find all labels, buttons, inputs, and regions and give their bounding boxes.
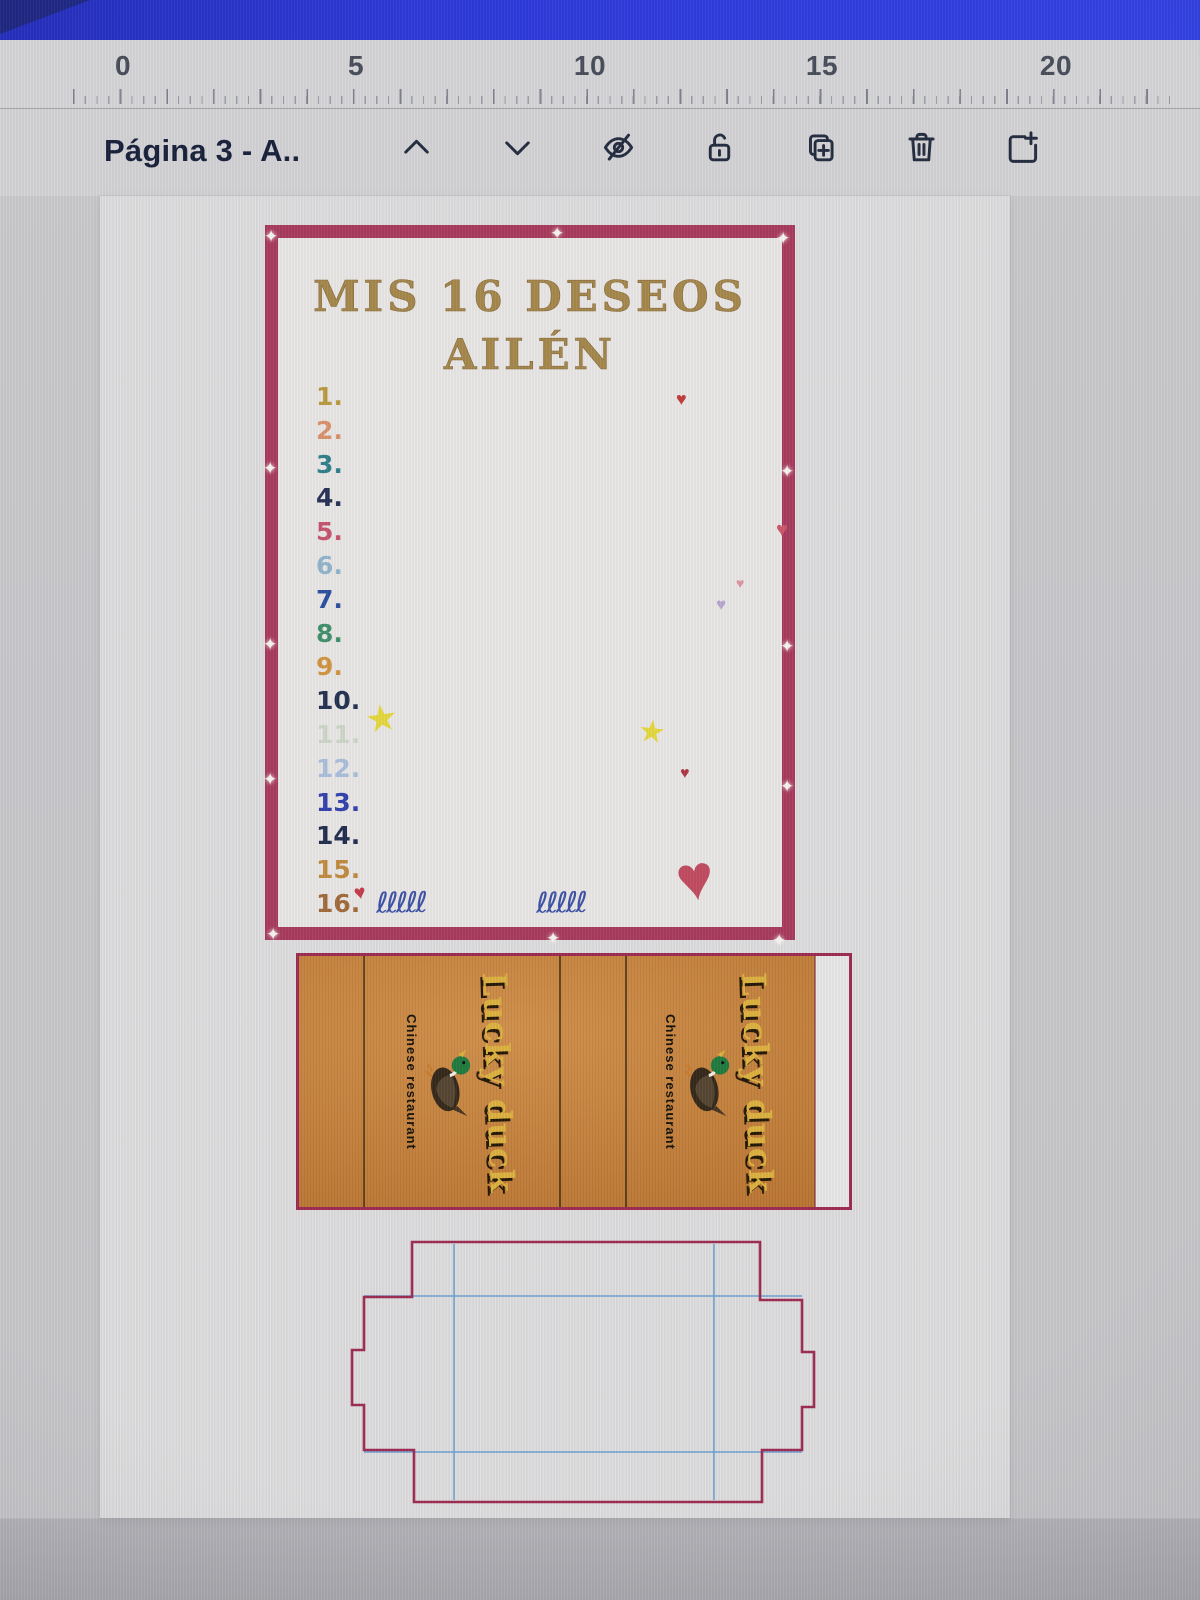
wish-number[interactable]: 9. [316,650,360,684]
ruler-ticks [73,89,1170,104]
wish-number[interactable]: 14. [316,819,360,853]
brand-subtitle[interactable]: Chinese restaurant [404,1014,419,1150]
dieline-cut-path [352,1242,814,1502]
duck-icon[interactable] [424,1047,474,1117]
sparkle-icon: ✦ [263,636,277,653]
wish-number[interactable]: 11. [316,718,360,752]
page-tools [397,128,1041,166]
move-page-up-button[interactable] [397,128,435,166]
lock-page-button[interactable] [700,128,738,166]
dieline-fold-lines [364,1244,802,1500]
wish-number[interactable]: 8. [316,617,360,651]
wish-number[interactable]: 12. [316,752,360,786]
add-page-icon [1004,129,1041,166]
brand-subtitle[interactable]: Chinese restaurant [663,1014,678,1150]
ruler-mark: 5 [348,50,364,82]
heart-icon[interactable]: ♥ [716,596,726,613]
duplicate-page-button[interactable] [801,128,839,166]
wish-list: 1. 2. 3. 4. 5. 6. 7. 8. 9. 10. 11. 12. 1… [316,380,360,921]
heart-icon[interactable]: ♥ [676,390,687,408]
lock-open-icon [701,129,738,166]
hide-eye-icon [600,129,637,166]
box-fold-line [559,956,561,1207]
duck-icon[interactable] [683,1047,733,1117]
wish-number[interactable]: 1. [316,380,360,414]
ruler-mark: 15 [806,50,838,82]
wish-number[interactable]: 7. [316,583,360,617]
wish-number[interactable]: 4. [316,481,360,515]
box-dieline[interactable] [342,1222,822,1512]
chevron-up-icon [398,129,435,166]
wish-number[interactable]: 3. [316,448,360,482]
box-fold-line [363,956,365,1207]
heart-icon[interactable]: ♥ [736,576,744,590]
screen: 0 5 10 15 20 Página 3 - A.. [0,0,1200,1600]
delete-page-button[interactable] [902,128,940,166]
chevron-down-icon [499,129,536,166]
brand-logo-panel-1[interactable]: Lucky duck Chinese restaurant [372,963,550,1201]
duplicate-icon [802,129,839,166]
wish-number[interactable]: 10. [316,684,360,718]
ruler-mark: 0 [115,50,131,82]
squiggle-doodle[interactable]: ℓℓℓℓℓ [376,889,426,918]
heart-icon[interactable]: ♥ [776,520,788,540]
design-page[interactable]: MIS 16 DESEOS AILÉN 1. 2. 3. 4. 5. 6. 7.… [100,196,1010,1518]
trash-icon [903,129,940,166]
box-flap-line [814,956,816,1207]
wish-number[interactable]: 13. [316,786,360,820]
heart-icon[interactable]: ♥ [680,766,690,782]
ruler-mark: 20 [1040,50,1072,82]
sparkle-icon: ✦ [546,930,560,947]
move-page-down-button[interactable] [498,128,536,166]
page-toolbar: Página 3 - A.. [0,109,1200,195]
sparkle-icon: ✦ [772,932,786,949]
wish-number[interactable]: 2. [316,414,360,448]
brand-name[interactable]: Lucky duck [475,970,522,1192]
page-title[interactable]: Página 3 - A.. [104,133,300,169]
sparkle-icon: ✦ [263,460,277,477]
brand-logo-panel-2[interactable]: Lucky duck Chinese restaurant [631,963,809,1201]
card-title-line1[interactable]: MIS 16 DESEOS [278,272,782,321]
sparkle-icon: ✦ [264,228,278,245]
ruler-mark: 10 [574,50,606,82]
sparkle-icon: ✦ [550,225,564,242]
wish-card[interactable]: MIS 16 DESEOS AILÉN 1. 2. 3. 4. 5. 6. 7.… [265,225,795,940]
hide-page-button[interactable] [599,128,637,166]
sparkle-icon: ✦ [780,463,794,480]
wish-number[interactable]: 5. [316,515,360,549]
sparkle-icon: ✦ [776,230,790,247]
star-icon[interactable]: ★ [363,698,401,739]
browser-top-bar [0,0,1200,40]
box-template[interactable]: Lucky duck Chinese restaurant Lucky duck [296,953,852,1210]
wish-number[interactable]: 6. [316,549,360,583]
sparkle-icon: ✦ [266,926,280,943]
box-fold-line [625,956,627,1207]
sparkle-icon: ✦ [780,778,794,795]
sparkle-icon: ✦ [780,638,794,655]
sparkle-icon: ✦ [263,771,277,788]
star-icon[interactable]: ★ [636,715,667,749]
heart-icon[interactable]: ♥ [672,844,719,913]
brand-name[interactable]: Lucky duck [734,970,781,1192]
heart-icon[interactable]: ♥ [352,882,367,904]
ruler: 0 5 10 15 20 [0,40,1200,109]
squiggle-doodle[interactable]: ℓℓℓℓℓ [536,889,586,918]
card-title-line2[interactable]: AILÉN [278,330,782,379]
add-page-button[interactable] [1003,128,1041,166]
